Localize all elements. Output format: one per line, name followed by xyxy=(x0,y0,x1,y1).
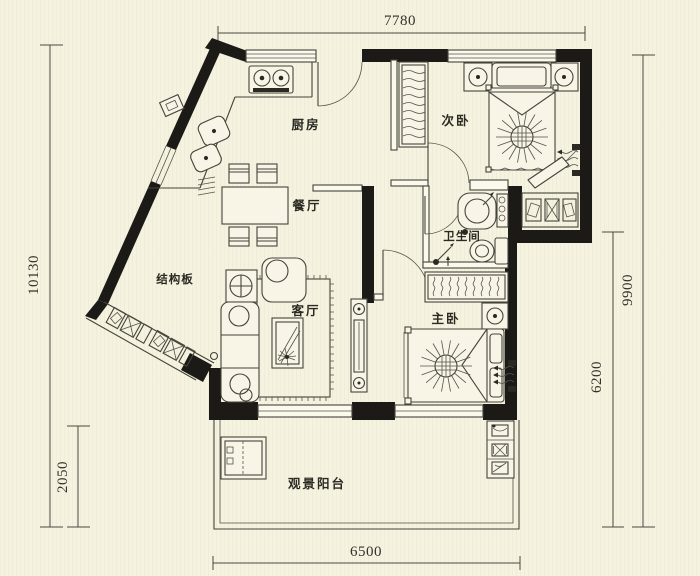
balcony: 观景阳台 xyxy=(214,420,519,529)
wall-right xyxy=(580,49,592,243)
armchair xyxy=(262,258,306,302)
bed xyxy=(486,85,558,172)
appliance-icon xyxy=(526,199,541,221)
dimension-right-lower-value: 6200 xyxy=(589,361,605,393)
dining-chair xyxy=(257,164,277,183)
balcony-utility-cabinet xyxy=(487,421,514,478)
wardrobe xyxy=(399,62,428,147)
bathroom-label: 卫生间 xyxy=(443,229,481,243)
kitchen-window xyxy=(246,50,316,62)
dimension-left-lower-value: 2050 xyxy=(55,461,71,493)
dimension-bottom-value: 6500 xyxy=(350,544,382,560)
master-bedroom-label: 主卧 xyxy=(431,311,460,326)
side-table-lamp-icon xyxy=(226,270,257,302)
structural-slab-label: 结构板 xyxy=(155,272,194,286)
dining-table xyxy=(222,187,288,224)
living-room: 客厅 xyxy=(221,258,367,402)
dining-chair xyxy=(257,227,277,246)
coffee-table xyxy=(272,318,303,368)
wall-closet-bottom xyxy=(508,230,592,243)
dining: 餐厅 xyxy=(222,164,322,246)
wall-kitchen-bar xyxy=(313,185,362,191)
living-label: 客厅 xyxy=(290,303,320,318)
wall-living-divider xyxy=(362,186,374,303)
laundry-closet xyxy=(522,193,578,227)
bathroom-cabinet xyxy=(497,194,508,227)
dimension-left-total: 10130 xyxy=(26,45,63,527)
bedroom2-window xyxy=(448,50,556,62)
floor-plan: 7780 10130 2050 9900 6200 6500 xyxy=(0,0,700,576)
balcony-bench xyxy=(221,437,266,479)
wall-flue-box xyxy=(160,95,184,117)
wall-bottom-middle xyxy=(352,402,395,420)
dimension-right-total: 9900 xyxy=(620,55,655,527)
wall-bathroom-left xyxy=(423,186,429,268)
wall-bedroom2-bottom-left xyxy=(391,180,428,186)
nightstand xyxy=(482,303,508,329)
balcony-label: 观景阳台 xyxy=(288,476,346,491)
dining-label: 餐厅 xyxy=(291,198,321,213)
master-door xyxy=(383,250,429,296)
master-bedroom: 主卧 xyxy=(404,272,516,404)
dimension-left-lower: 2050 xyxy=(55,426,90,527)
dimension-bottom: 6500 xyxy=(213,544,520,570)
slab-end-wall xyxy=(181,353,212,382)
dimension-left-total-value: 10130 xyxy=(26,255,42,295)
dimension-right-lower: 6200 xyxy=(589,232,624,527)
wall-bedroom2-bathroom xyxy=(470,180,508,190)
wall-top-middle xyxy=(362,49,448,62)
living-balcony-window xyxy=(258,405,352,417)
slab-end-marker xyxy=(211,353,218,360)
wall-diagonal-bend xyxy=(85,300,108,320)
floor-plan-drawing: 7780 10130 2050 9900 6200 6500 xyxy=(0,0,700,576)
bathroom-door xyxy=(425,196,463,234)
dimension-right-total-value: 9900 xyxy=(620,274,636,306)
laundry-closet-outline xyxy=(522,193,578,227)
bed-headboard xyxy=(492,63,551,90)
sink-icon xyxy=(189,114,232,173)
wall-living-left xyxy=(209,368,221,420)
second-bedroom-label: 次卧 xyxy=(441,113,470,128)
wall-diagonal-lower xyxy=(98,181,161,304)
wall-bedroom2-left xyxy=(391,60,397,150)
bed xyxy=(404,327,504,404)
second-bedroom: 次卧 xyxy=(399,62,580,188)
tv-cabinet xyxy=(351,299,367,392)
dresser-line xyxy=(566,150,577,161)
dining-chair xyxy=(229,227,249,246)
wall-bottom-right xyxy=(483,404,517,420)
dimension-top-value: 7780 xyxy=(384,13,416,29)
bedroom2-door xyxy=(428,143,469,183)
stove-icon xyxy=(249,66,293,93)
master-balcony-window xyxy=(395,405,483,417)
kitchen-label: 厨房 xyxy=(291,117,320,132)
diagonal-window xyxy=(151,146,176,185)
entry-door xyxy=(318,62,362,106)
dining-chair xyxy=(229,164,249,183)
bathroom-sink-icon xyxy=(458,192,496,229)
dimension-top: 7780 xyxy=(218,13,585,41)
wardrobe xyxy=(425,272,508,302)
appliance-icon xyxy=(563,199,576,221)
sofa xyxy=(221,302,259,402)
folding-rack-icon xyxy=(545,199,559,221)
wall-master-top-left xyxy=(374,294,383,300)
